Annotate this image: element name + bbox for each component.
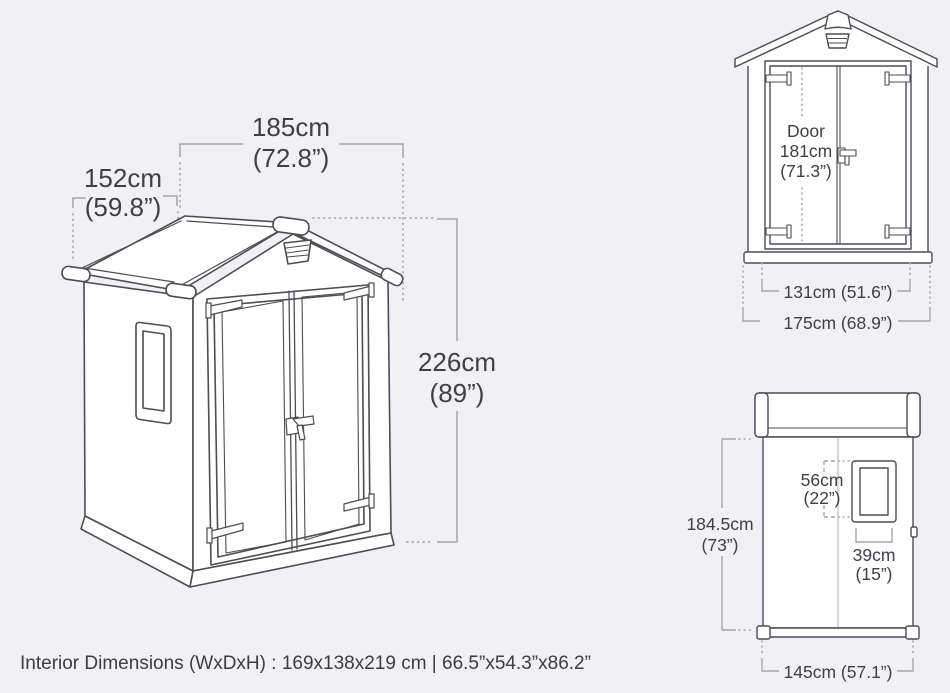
hinge-icon [766, 75, 789, 82]
side-window [852, 461, 896, 522]
main-height-dimension-label: 226cm (89”) [418, 347, 496, 409]
front-roof-cap [825, 11, 851, 29]
shed-double-doors [206, 283, 374, 565]
side-base-foot-right [906, 626, 919, 639]
side-roof-cap-left [755, 393, 768, 437]
hinge-icon [887, 228, 910, 235]
window-width-dimension-label: 39cm (15”) [853, 546, 896, 584]
front-body-fill [748, 19, 928, 252]
side-latch-icon [911, 527, 917, 537]
hinge-icon [766, 228, 789, 235]
main-width-dimension-label: 185cm (72.8”) [252, 112, 330, 174]
gable-vent-icon [284, 240, 311, 264]
window-height-dimension-label: 56cm (22”) [801, 471, 844, 507]
side-roof-band [755, 393, 920, 437]
side-roof-cap-right [907, 393, 920, 437]
side-base [763, 628, 913, 637]
side-base-foot-left [757, 626, 770, 639]
side-depth-dimension-label: 145cm (57.1”) [784, 662, 893, 682]
shed-side-window [136, 322, 171, 423]
door-width-dimension-label: 131cm (51.6”) [784, 282, 893, 302]
hinge-icon [887, 75, 910, 82]
front-gable-vent-icon [826, 34, 849, 48]
interior-dimensions-text: Interior Dimensions (WxDxH) : 169x138x21… [20, 653, 591, 675]
door-height-dimension-label: Door 181cm (71.3”) [780, 121, 833, 181]
front-elevation-view [735, 11, 937, 321]
main-depth-dimension-label: 152cm (59.8”) [84, 164, 162, 222]
side-height-dimension-label: 184.5cm (73”) [686, 514, 753, 556]
overall-width-dimension-label: 175cm (68.9”) [784, 313, 893, 333]
main-shed-drawing [61, 216, 404, 587]
front-base [744, 252, 932, 263]
